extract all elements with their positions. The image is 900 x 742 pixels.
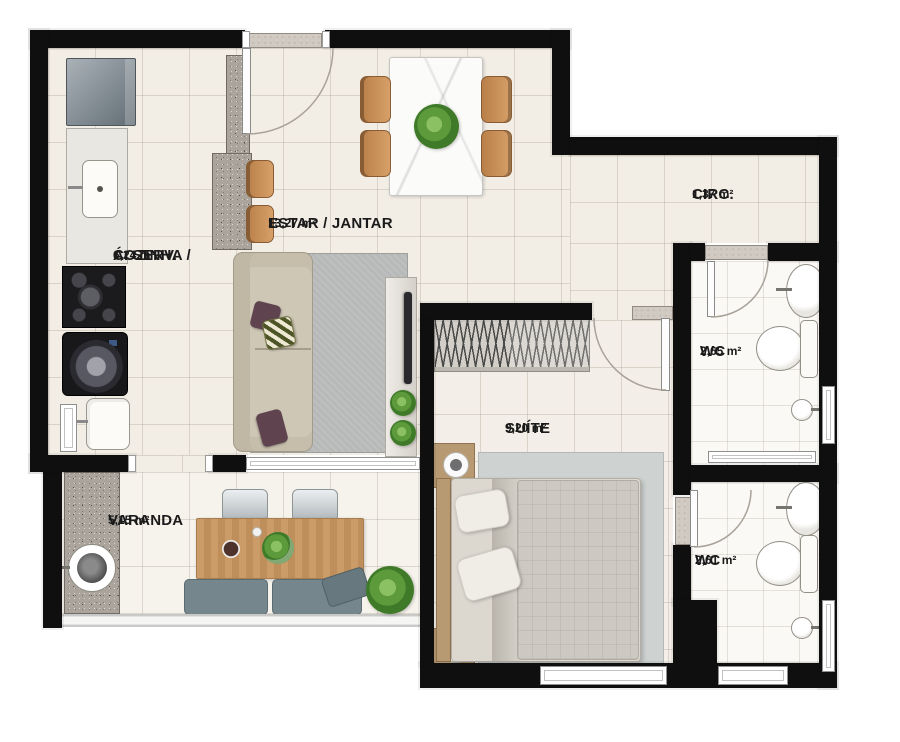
dining-chair-2 [360,130,391,177]
bedside-lamp-1 [443,452,469,478]
panel-plant-1 [390,390,416,416]
balcony-sink-inner [77,553,107,583]
sofa-cushion-seam [255,348,311,350]
counter-stool-1 [246,160,274,198]
balcony-plate [222,540,240,558]
dining-chair-3 [481,76,512,123]
shower-screen-wc-social [708,451,816,463]
wall-left-lower [43,472,62,628]
washing-machine [62,332,128,396]
wall-varanda-segment [210,455,246,472]
wall-circ-wc-right [768,243,837,261]
suite-door-leaf [661,318,670,391]
passage-jamb-left [128,455,136,472]
faucet-wc-social [776,288,792,291]
window-right-wall-upper [822,386,835,444]
room-area: 2,61 m² [695,553,736,568]
dining-chair-4 [481,130,512,177]
refrigerator [66,58,136,126]
wall-circ-wc-left [691,243,705,261]
room-area: 2,65 m² [700,344,741,359]
passage-jamb-right [205,455,213,472]
window-right-wall-lower [822,600,835,672]
entrance-threshold [249,33,322,48]
throw-pillow-zigzag [261,315,297,351]
wall-step-horizontal [570,137,837,155]
toilet-tank-wc-social [800,320,818,378]
laundry-tank [86,398,130,450]
tv [404,292,412,384]
wall-suite-left [420,320,434,666]
room-area: 6,24 m² [113,248,154,263]
bed-headboard [436,478,451,662]
toilet-tank-wc-suite [800,535,818,593]
kitchen-duct-niche [60,404,77,452]
toilet-bowl-wc-social [756,326,804,371]
floor-plan: COZINHA / Á. SERV. 6,24 m² ESTAR / JANTA… [0,0,900,742]
floor-passage [135,455,210,472]
balcony-table-flowers [262,532,294,564]
wc-suite-threshold [675,497,691,545]
room-area: 5,15 m² [108,513,149,528]
wall-kitchen-varanda [30,455,135,472]
wall-left-upper [30,30,48,472]
balcony-bench-cushion-1 [184,579,268,615]
sliding-glass-door-varanda [246,457,420,470]
dining-chair-1 [360,76,391,123]
wall-top-right [325,30,570,48]
cooktop [62,266,126,328]
wc-suite-door-leaf [690,490,698,547]
wall-hall-vertical-upper [673,243,691,495]
wall-step-vertical [552,30,570,155]
entrance-jamb-right [322,31,330,48]
shower-head-wc-social [791,399,813,421]
balcony-plant [366,566,414,614]
balcony-cup [252,527,262,537]
room-area: 1,37 m² [692,187,733,202]
wc-social-door-leaf [707,261,715,317]
room-area: 9,20 m² [505,421,546,436]
kitchen-sink-drain [97,186,103,192]
wall-living-suite [420,303,592,320]
toilet-bowl-wc-suite [756,541,804,586]
dining-centerpiece-plant [414,104,459,149]
wall-top-left [30,30,245,48]
shower-head-wc-suite [791,617,813,639]
bed-quilt [517,480,639,660]
wall-between-wcs [691,465,837,482]
faucet-wc-suite [776,506,792,509]
wall-hall-vertical-lower [673,545,691,605]
glass-railing [43,614,422,627]
entrance-door-leaf [242,48,251,134]
window-wc-suite [718,666,788,685]
panel-plant-2 [390,420,416,446]
wardrobe-hangers [434,315,590,372]
kitchen-faucet [68,186,83,189]
window-suite [540,666,667,685]
room-area: 13,27 m² [268,216,316,231]
balcony-counter [64,472,120,614]
entrance-jamb-left [242,31,250,48]
wall-suite-wc-corner [673,600,717,666]
wc-social-threshold [705,245,768,260]
